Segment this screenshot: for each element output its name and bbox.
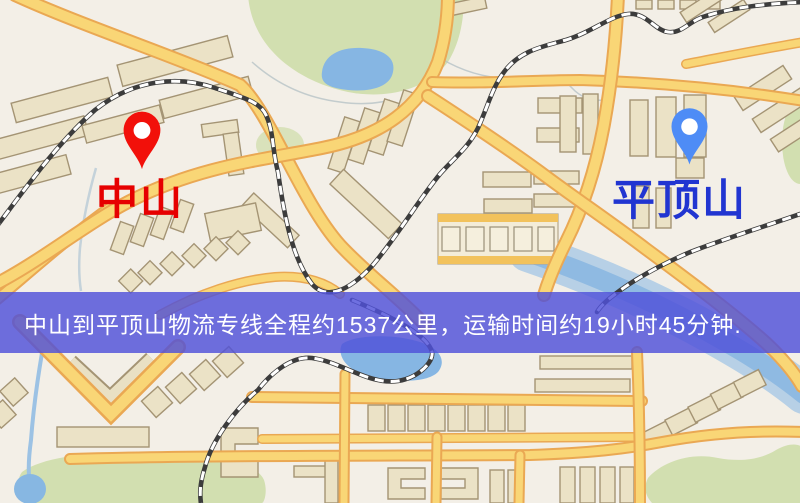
map-view: 中山 平顶山 中山到平顶山物流专线全程约1537公里，运输时间约19小时45分钟…	[0, 0, 800, 503]
map-background	[0, 0, 800, 503]
origin-label: 中山	[96, 179, 184, 221]
route-info-banner: 中山到平顶山物流专线全程约1537公里，运输时间约19小时45分钟.	[0, 292, 800, 353]
map-pin-icon	[667, 104, 712, 168]
route-info-text: 中山到平顶山物流专线全程约1537公里，运输时间约19小时45分钟.	[0, 306, 742, 340]
map-pin-icon	[119, 106, 165, 174]
destination-label: 平顶山	[612, 180, 747, 223]
building-complex	[438, 214, 558, 264]
destination-marker[interactable]	[667, 104, 712, 168]
origin-marker[interactable]	[119, 106, 165, 174]
